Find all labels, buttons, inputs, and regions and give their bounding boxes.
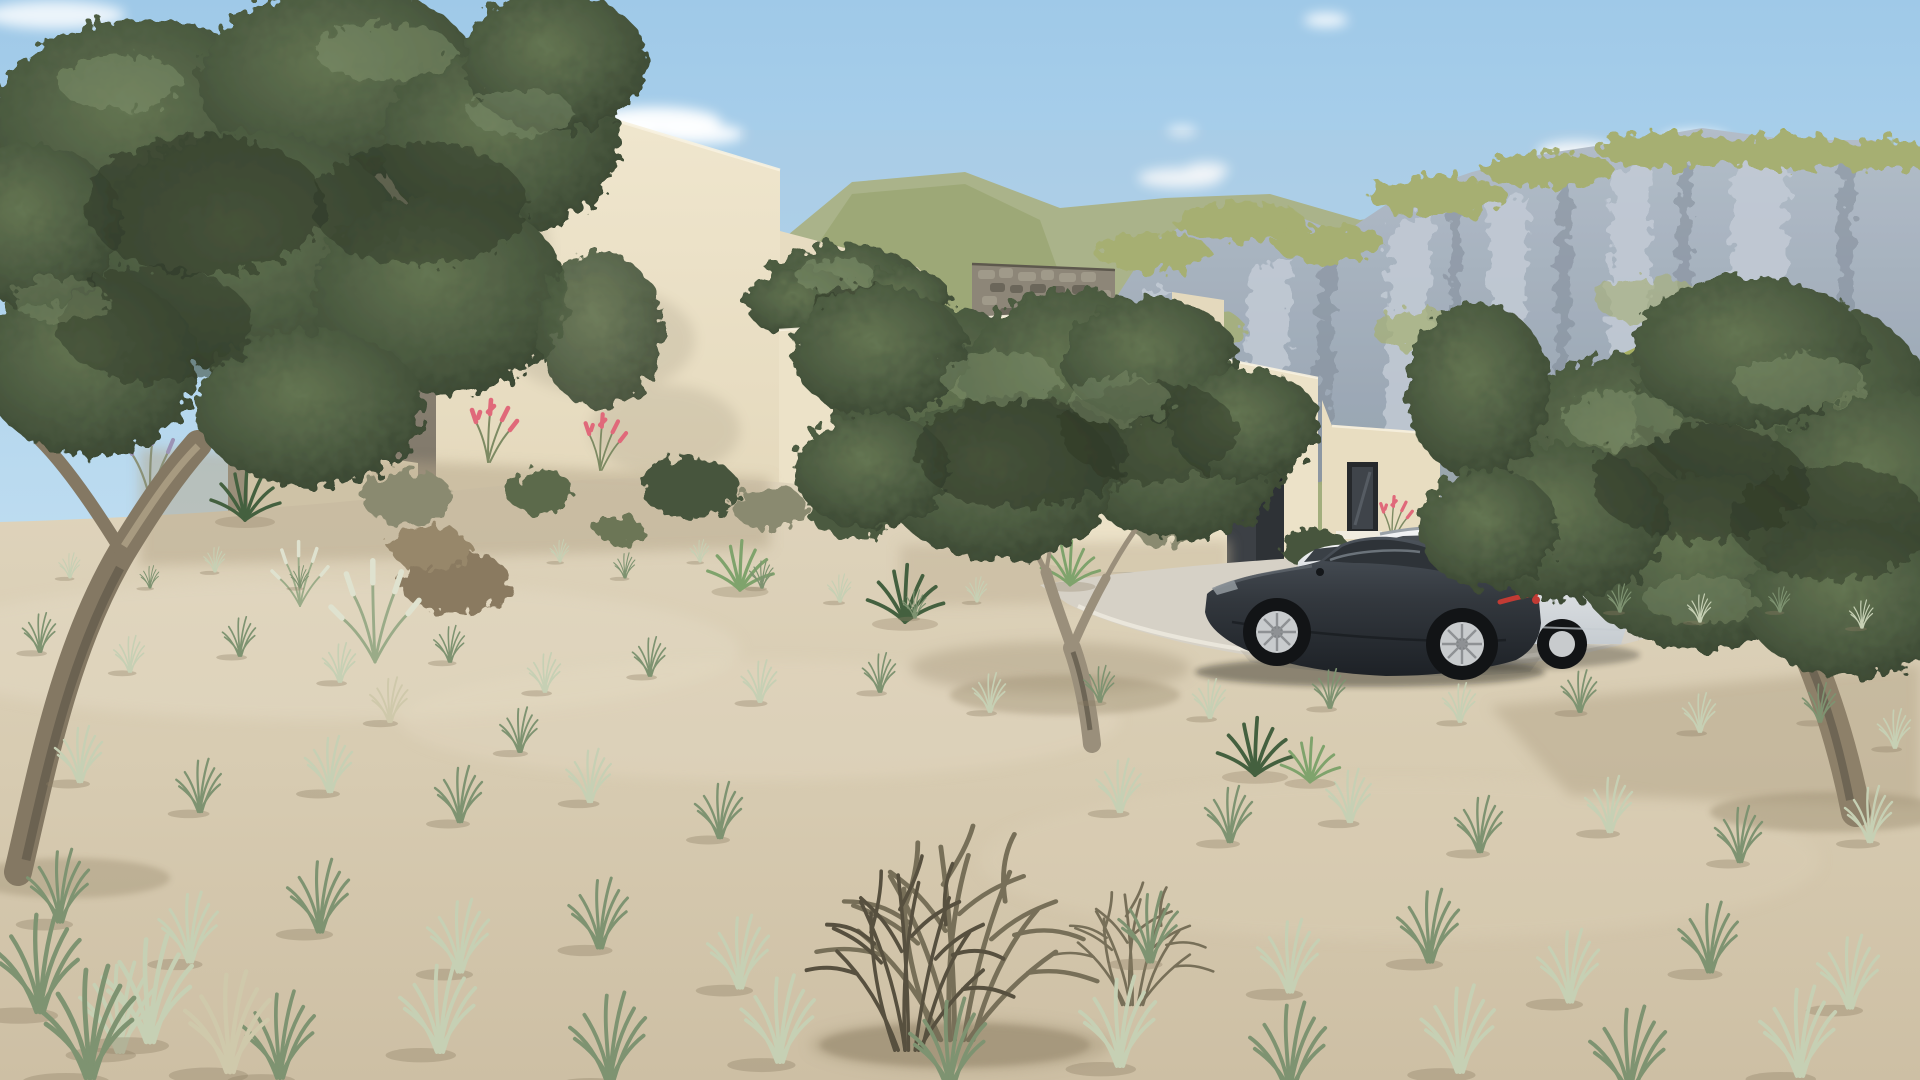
wheel-rear <box>1426 608 1498 680</box>
wheel-front <box>1243 598 1311 666</box>
architectural-rendering-scene <box>0 0 1920 1080</box>
